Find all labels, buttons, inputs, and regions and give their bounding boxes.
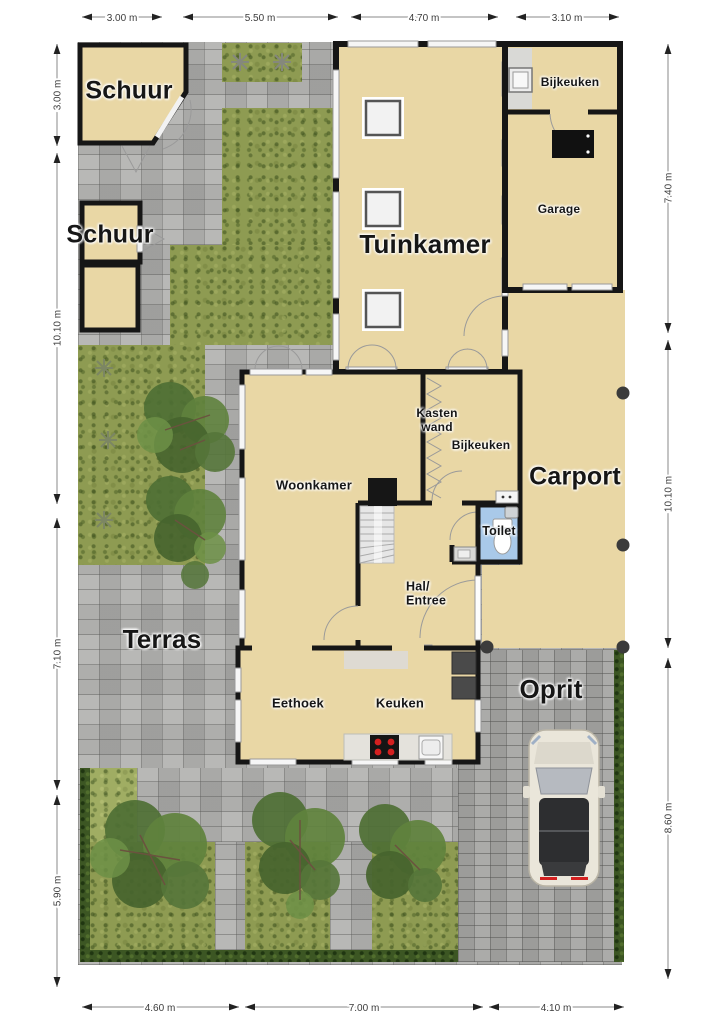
garage-door-windows bbox=[523, 284, 612, 290]
sink-icon bbox=[419, 736, 443, 759]
room-schuur-annex bbox=[82, 265, 138, 330]
label-bijkeuken-top: Bijkeuken bbox=[541, 76, 600, 90]
shrub-icon bbox=[273, 53, 291, 71]
plan-drawing: 3.00 m 5.50 m 4.70 m 3.10 m 4.60 m 7.00 … bbox=[0, 0, 724, 1024]
dim-right-2: 10.10 m bbox=[664, 476, 675, 512]
dim-left-3: 7.10 m bbox=[53, 639, 64, 670]
car bbox=[523, 730, 605, 886]
tree-garden-3 bbox=[359, 804, 446, 902]
dim-left-4: 5.90 m bbox=[53, 876, 64, 907]
workbench-icon bbox=[552, 130, 594, 158]
label-tuinkamer: Tuinkamer bbox=[359, 230, 490, 260]
dim-bottom-1: 4.60 m bbox=[145, 1003, 176, 1014]
shrub-icon bbox=[95, 359, 113, 377]
label-kasten-wand: Kasten wand bbox=[416, 407, 457, 435]
stairs-icon bbox=[360, 506, 394, 563]
room-tuinkamer bbox=[336, 44, 505, 372]
wall-socket-icon bbox=[496, 491, 518, 503]
dim-top-2: 5.50 m bbox=[245, 13, 276, 24]
label-oprit: Oprit bbox=[519, 675, 582, 705]
stove-fireplace-icon bbox=[368, 478, 397, 506]
toilet-corner-sink-icon bbox=[505, 507, 518, 518]
tree-garden-1 bbox=[90, 800, 209, 909]
washer-icon bbox=[509, 68, 532, 92]
tree-upper-2 bbox=[146, 476, 226, 589]
dim-top-3: 4.70 m bbox=[409, 13, 440, 24]
dim-top-4: 3.10 m bbox=[552, 13, 583, 24]
label-woonkamer: Woonkamer bbox=[276, 479, 352, 494]
shrub-icon bbox=[231, 53, 249, 71]
dim-bottom-2: 7.00 m bbox=[349, 1003, 380, 1014]
label-toilet: Toilet bbox=[482, 524, 516, 538]
dim-left-2: 10.10 m bbox=[53, 310, 64, 346]
hall-sink-icon bbox=[454, 547, 476, 561]
label-keuken: Keuken bbox=[376, 697, 424, 712]
skylight-icons bbox=[362, 97, 404, 331]
floorplan-canvas: 3.00 m 5.50 m 4.70 m 3.10 m 4.60 m 7.00 … bbox=[0, 0, 724, 1024]
label-garage: Garage bbox=[538, 203, 581, 217]
label-hal: Hal/ Entree bbox=[406, 580, 446, 609]
label-eethoek: Eethoek bbox=[272, 697, 324, 712]
label-carport: Carport bbox=[529, 463, 621, 492]
kitchen-counter-top bbox=[344, 651, 408, 669]
shrub-icon bbox=[95, 511, 113, 529]
dim-right-1: 7.40 m bbox=[664, 173, 675, 204]
cooktop-icon bbox=[370, 735, 399, 759]
dim-top-1: 3.00 m bbox=[107, 13, 138, 24]
dim-right-3: 8.60 m bbox=[664, 803, 675, 834]
shrub-icon bbox=[99, 431, 117, 449]
label-terras: Terras bbox=[123, 625, 202, 655]
dim-bottom-3: 4.10 m bbox=[541, 1003, 572, 1014]
tree-garden-2 bbox=[252, 792, 345, 919]
label-schuur-top: Schuur bbox=[85, 77, 172, 106]
dim-left-1: 3.00 m bbox=[53, 80, 64, 111]
label-bijkeuken-mid: Bijkeuken bbox=[452, 439, 511, 453]
tree-upper-1 bbox=[137, 382, 235, 473]
label-schuur-left: Schuur bbox=[66, 221, 153, 250]
front-door bbox=[475, 576, 481, 640]
